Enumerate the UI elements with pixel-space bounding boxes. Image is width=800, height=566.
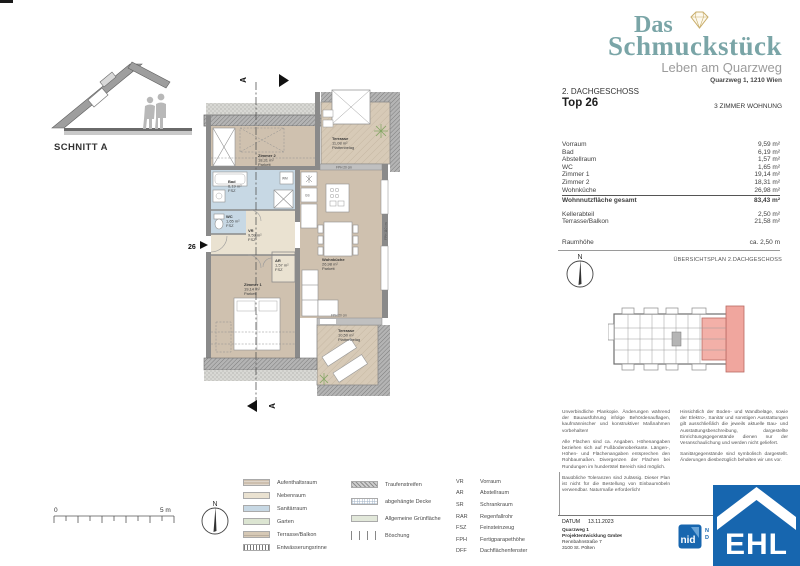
legend-item: Traufenstreifen — [351, 476, 441, 493]
legend-item: Aufenthaltsraum — [243, 476, 327, 489]
compass: N — [197, 497, 235, 544]
compass-needle — [214, 507, 217, 532]
area-row: Bad6,19 m² — [562, 149, 780, 157]
area-total-row: Wohnnutzfläche gesamt83,43 m² — [562, 195, 780, 205]
gravel-band-bottom — [204, 370, 317, 381]
abbr-label: Regenfallrohr — [480, 514, 513, 520]
fph-label-bottom: FPH 20 cm — [331, 314, 347, 318]
developer-address: Quarzweg 1 Projektentwicklung GmbH Rennb… — [562, 528, 622, 552]
stair-core — [672, 332, 681, 346]
legend-item: Entwässerungsrinne — [243, 541, 327, 554]
floor-plan: A A 26 Zimmer 2 18,31 m² Parkett Terrass… — [186, 70, 422, 427]
abbr: RAR — [456, 514, 480, 520]
legend-label: Nebenraum — [277, 493, 306, 499]
vr-kitchen-opening — [295, 222, 300, 248]
bed — [234, 298, 280, 350]
area-table: Vorraum9,59 m² Bad6,19 m² Abstellraum1,5… — [562, 141, 780, 247]
ehl-logo: EHL — [713, 485, 800, 566]
eave-band-terrace2-bottom — [317, 385, 390, 396]
eave-band-top — [204, 115, 321, 126]
date-value: 13.11.2023 — [588, 519, 614, 525]
terrace-skylight — [332, 90, 370, 124]
abbr-label: Dachflächenfenster — [480, 548, 527, 554]
area-label: Bad — [562, 149, 574, 157]
compass-needle — [579, 260, 582, 285]
abbr: VR — [456, 479, 480, 485]
swatch-entwaesserungsrinne — [243, 544, 270, 551]
legend-item: Böschung — [351, 527, 441, 544]
legend-label: Entwässerungsrinne — [277, 545, 327, 551]
legend-item: Terrasse/Balkon — [243, 528, 327, 541]
toilet — [214, 214, 224, 229]
disclaimer-paragraph: Sanitärgegenstände sind symbolisch darge… — [680, 452, 788, 464]
area-row: Abstellraum1,57 m² — [562, 156, 780, 164]
partner-fragment-line: N — [705, 528, 709, 535]
brand-subtitle: Leben am Quarzweg — [661, 60, 782, 75]
scale-bar: 0 5 m — [50, 503, 184, 532]
roof-ridge — [128, 62, 170, 88]
abbr-row: SRSchrankraum — [456, 499, 527, 511]
area-label: Vorraum — [562, 141, 587, 149]
area-row: Vorraum9,59 m² — [562, 141, 780, 149]
scale-ticks — [54, 516, 174, 523]
floorplan-sheet: SCHNITT A — [0, 0, 800, 566]
area-value: 19,14 m² — [754, 171, 780, 179]
legend-label: Traufenstreifen — [385, 482, 422, 488]
legend-label: Böschung — [385, 533, 409, 539]
shower — [274, 190, 293, 208]
area-total-value: 83,43 m² — [754, 197, 780, 205]
legend-label: Aufenthaltsraum — [277, 480, 317, 486]
abbr-label: Feinsteinzeug — [480, 525, 514, 531]
abbr-row: VRVorraum — [456, 476, 527, 488]
plant — [374, 124, 388, 138]
abbr-row: FPHFertigparapethöhe — [456, 534, 527, 546]
scale-zero: 0 — [54, 507, 58, 514]
area-value: 9,59 m² — [758, 141, 780, 149]
section-marker-top: A — [239, 77, 248, 83]
eave-band-bottom — [204, 358, 317, 370]
legend-label: Allgemeine Grünfläche — [385, 516, 441, 522]
terrace-chair — [323, 110, 333, 117]
swatch-gruenflaeche — [351, 515, 378, 522]
compass-n-label: N — [212, 501, 217, 508]
area-value: 2,50 m² — [758, 211, 780, 219]
section-marker-bottom: A — [268, 403, 277, 409]
unit-label: Top 26 — [562, 97, 598, 109]
abbr-label: Abstellraum — [480, 490, 509, 496]
swatch-aufenthaltsraum — [243, 479, 270, 486]
abbr: DFF — [456, 548, 480, 554]
svg-text:FSZ: FSZ — [226, 223, 234, 228]
people-silhouettes — [143, 94, 166, 129]
legend-label: Garten — [277, 519, 294, 525]
floor-slab-light — [64, 131, 192, 135]
swatch-garten — [243, 518, 270, 525]
window-right-2 — [381, 246, 388, 290]
area-label: Terrasse/Balkon — [562, 218, 609, 226]
legend-label: abgehängte Decke — [385, 499, 431, 505]
gravel-band-top — [206, 103, 319, 115]
floor-slab — [64, 128, 192, 131]
highlighted-terrace-block — [726, 306, 744, 372]
legend-patterns: Traufenstreifen abgehängte Decke Allgeme… — [351, 476, 441, 544]
area-label: Zimmer 1 — [562, 171, 589, 179]
swatch-nebenraum — [243, 492, 270, 499]
swatch-sanitaerraum — [243, 505, 270, 512]
area-row: Kellerabteil2,50 m² — [562, 211, 780, 219]
compass: N — [564, 250, 598, 297]
legend-label: Sanitärraum — [277, 506, 307, 512]
abbr-label: Schrankraum — [480, 502, 513, 508]
dining-table — [318, 222, 358, 256]
brand-name: Schmuckstück — [608, 31, 782, 62]
nid-logo: nid — [678, 524, 702, 554]
swatch-boeschung — [351, 531, 378, 540]
svg-text:FSZ: FSZ — [228, 188, 236, 193]
svg-text:Parkett: Parkett — [258, 162, 272, 167]
brand-address: Quarzweg 1, 1210 Wien — [710, 77, 782, 84]
legend-item: abgehängte Decke — [351, 493, 441, 510]
company-city: 3100 St. Pölten — [562, 546, 622, 552]
area-row: Terrasse/Balkon21,58 m² — [562, 218, 780, 226]
wall-mid-vertical — [295, 170, 300, 358]
area-value: 26,98 m² — [754, 187, 780, 195]
svg-text:Plattenbelag: Plattenbelag — [338, 337, 360, 342]
sink — [213, 190, 225, 202]
area-value: 21,58 m² — [754, 218, 780, 226]
svg-text:Parkett: Parkett — [244, 291, 258, 296]
area-row: Zimmer 218,31 m² — [562, 179, 780, 187]
area-value: 1,57 m² — [758, 156, 780, 164]
area-label: Abstellraum — [562, 156, 596, 164]
disclaimer-paragraph: Hinsichtlich der Boden- und Wandbeläge, … — [680, 410, 788, 447]
section-drawing — [44, 58, 194, 145]
abbr-row: ARAbstellraum — [456, 488, 527, 500]
disclaimer-paragraph: Alle Flächen sind ca. Angaben. Höhenanga… — [562, 440, 670, 471]
footer-divider-vertical — [559, 472, 560, 516]
area-label: WC — [562, 164, 573, 172]
partner-text-fragment: N D — [705, 528, 709, 541]
section-arrow-top — [279, 74, 289, 87]
abbr-row: DFFDachflächenfenster — [456, 546, 527, 558]
legend-item: Sanitärraum — [243, 502, 327, 515]
overview-miniplan — [608, 300, 748, 383]
area-total-label: Wohnnutzfläche gesamt — [562, 197, 637, 205]
legend-swatches: Aufenthaltsraum Nebenraum Sanitärraum Ga… — [243, 476, 327, 554]
room-height-value: ca. 2,50 m — [750, 239, 780, 247]
svg-text:FSZ: FSZ — [275, 267, 283, 272]
fph-label-side: FPH 110 cm — [384, 222, 388, 240]
room-height-row: Raumhöheca. 2,50 m — [562, 239, 780, 247]
legend-item: Allgemeine Grünfläche — [351, 510, 441, 527]
terrace-chair — [323, 120, 333, 127]
footer-divider-horizontal — [558, 515, 713, 516]
ehl-logo-text: EHL — [725, 528, 788, 561]
compass-n-label: N — [577, 254, 582, 261]
abbr-label: Fertigparapethöhe — [480, 537, 525, 543]
swatch-terrasse — [243, 531, 270, 538]
svg-text:FSZ: FSZ — [248, 237, 256, 242]
abbr: FSZ — [456, 525, 480, 531]
legend-label: Terrasse/Balkon — [277, 532, 316, 538]
date-row: DATUM 13.11.2023 — [562, 519, 614, 525]
fph-label-top: FPH 20 cm — [336, 166, 352, 170]
section-label: SCHNITT A — [54, 142, 108, 153]
gs-label: GS — [305, 194, 310, 198]
overview-title: ÜBERSICHTSPLAN 2.DACHGESCHOSS — [674, 257, 783, 263]
abbr: FPH — [456, 537, 480, 543]
wall-terrace-left — [315, 92, 320, 170]
disclaimer-paragraph: Unverbindliche Plankopie. Änderungen wäh… — [562, 410, 670, 435]
abbr-label: Vorraum — [480, 479, 501, 485]
svg-text:Plattenbelag: Plattenbelag — [332, 145, 354, 150]
area-value: 18,31 m² — [754, 179, 780, 187]
disclaimer-left-column: Unverbindliche Plankopie. Änderungen wäh… — [562, 410, 670, 499]
window-right-1 — [381, 180, 388, 214]
wardrobe — [213, 128, 235, 166]
floor-label: 2. DACHGESCHOSS — [562, 87, 639, 96]
abbr: AR — [456, 490, 480, 496]
area-row: Wohnküche26,98 m² — [562, 187, 780, 195]
wm-label: WM — [282, 177, 288, 181]
kitchen-island — [326, 184, 349, 212]
abbr-row: FSZFeinsteinzeug — [456, 522, 527, 534]
scale-five: 5 m — [160, 507, 171, 514]
eave-band-terrace2-right — [378, 325, 390, 389]
section-arrow-bottom — [247, 400, 257, 412]
swatch-traufenstreifen — [351, 481, 378, 488]
area-value: 1,65 m² — [758, 164, 780, 172]
terrace-door-opening — [320, 319, 336, 324]
legend-abbreviations: VRVorraum ARAbstellraum SRSchrankraum RA… — [456, 476, 527, 557]
room-height-label: Raumhöhe — [562, 239, 594, 247]
swatch-abgehaengte-decke — [351, 498, 378, 505]
eave-band-terrace-right — [390, 92, 400, 172]
area-label: Kellerabteil — [562, 211, 594, 219]
area-row: Zimmer 119,14 m² — [562, 171, 780, 179]
disclaimer-paragraph: Bauübliche Toleranzen sind zulässig. Die… — [562, 476, 670, 495]
info-panel: Das Schmuckstück Leben am Quarzweg Quarz… — [558, 0, 800, 566]
unit-number: 26 — [188, 244, 196, 251]
unit-type: 3 ZIMMER WOHNUNG — [714, 103, 782, 110]
area-label: Zimmer 2 — [562, 179, 589, 187]
partner-fragment-line: D — [705, 535, 709, 542]
legend-item: Garten — [243, 515, 327, 528]
page-corner-mark — [0, 0, 13, 3]
entry-opening — [206, 236, 211, 252]
nid-logo-text: nid — [681, 535, 696, 546]
area-label: Wohnküche — [562, 187, 596, 195]
abbr-row: RARRegenfallrohr — [456, 511, 527, 523]
date-label: DATUM — [562, 519, 588, 525]
area-row: WC1,65 m² — [562, 164, 780, 172]
legend-item: Nebenraum — [243, 489, 327, 502]
svg-text:Parkett: Parkett — [322, 266, 336, 271]
abbr: SR — [456, 502, 480, 508]
area-value: 6,19 m² — [758, 149, 780, 157]
